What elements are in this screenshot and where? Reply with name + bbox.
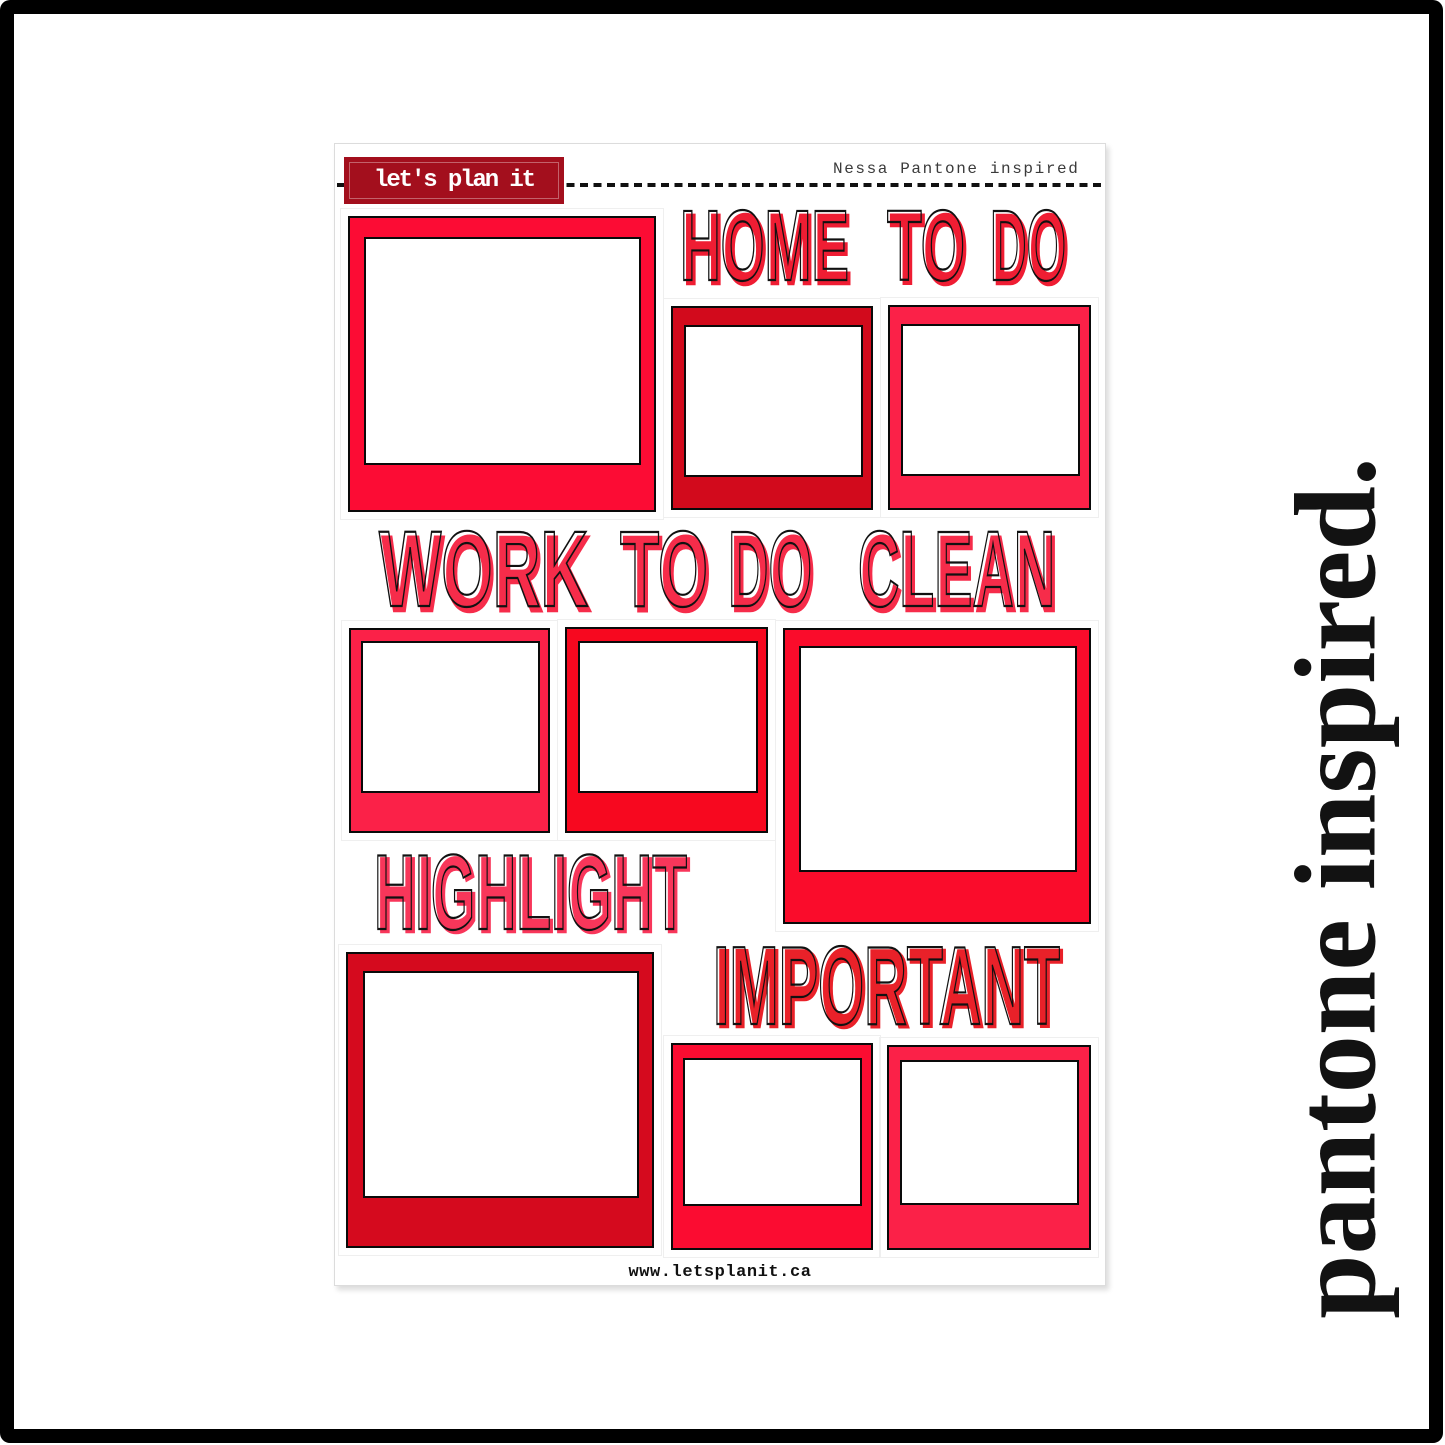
svg-text:IMPORTANT: IMPORTANT — [713, 924, 1060, 1048]
